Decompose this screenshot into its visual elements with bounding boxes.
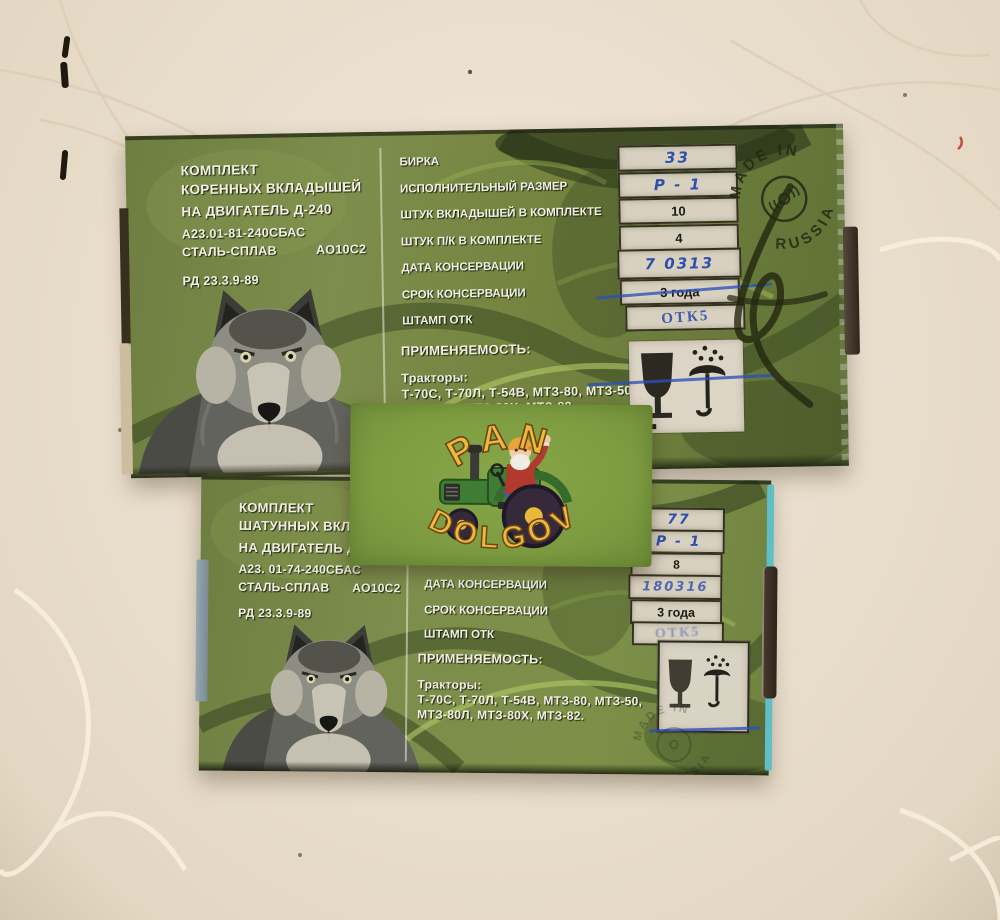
kit-title-line2: КОРЕННЫХ ВКЛАДЫШЕЙ <box>181 177 362 199</box>
application-title: ПРИМЕНЯЕМОСТЬ: <box>418 651 543 666</box>
application-title: ПРИМЕНЯЕМОСТЬ: <box>401 341 531 358</box>
spec-label: ШТУК П/К В КОМПЛЕКТЕ <box>401 234 542 248</box>
application-heading: Тракторы: <box>417 677 481 692</box>
business-card: PAN DOLGOV <box>349 403 652 567</box>
right-flap-tab <box>761 566 777 698</box>
spec-label: ДАТА КОНСЕРВАЦИИ <box>424 578 547 591</box>
material-label: СТАЛЬ-СПЛАВ <box>182 244 277 260</box>
spec-label: ДАТА КОНСЕРВАЦИИ <box>401 260 524 274</box>
value-tag: 77 <box>667 512 691 528</box>
engine-line: НА ДВИГАТЕЛЬ Д-240 <box>181 200 332 222</box>
material-grade: АО10С2 <box>352 581 400 595</box>
right-flap-tab <box>843 227 860 355</box>
material-grade: АО10С2 <box>316 242 367 257</box>
application-heading: Тракторы: <box>401 370 468 385</box>
photo-scene: КОМПЛЕКТ КОРЕННЫХ ВКЛАДЫШЕЙ НА ДВИГАТЕЛЬ… <box>0 0 1000 920</box>
marker-scribble <box>698 176 849 414</box>
value-box: 180316 <box>628 574 722 600</box>
application-models-line2: МТЗ-80Л, МТЗ-80Х, МТЗ-82. <box>417 707 584 722</box>
left-cardboard-edge <box>120 344 133 474</box>
spec-label: ШТАМП ОТК <box>402 314 472 327</box>
value-size: Р - 1 <box>654 175 702 194</box>
application-models-line1: Т-70С, Т-70Л, Т-54В, МТЗ-80, МТЗ-50, <box>417 692 642 708</box>
left-tape-strip <box>195 559 208 701</box>
engine-line: НА ДВИГАТЕЛЬ Д <box>239 540 357 556</box>
part-code: А23. 01-74-240СБАС <box>238 562 361 577</box>
spec-label: БИРКА <box>399 156 439 169</box>
red-mark <box>958 137 962 149</box>
value-tag: 33 <box>665 148 690 166</box>
spec-label: СРОК КОНСЕРВАЦИИ <box>424 604 548 617</box>
material-label: СТАЛЬ-СПЛАВ <box>238 580 329 595</box>
made-in-russia-stamp-faint: MADE IN RUSSIA <box>624 694 725 775</box>
value-shells-count: 10 <box>671 203 686 218</box>
value-conservation-date: 180316 <box>642 579 708 595</box>
value-shells-count: 8 <box>673 558 680 572</box>
value-conservation-term: 3 года <box>657 605 695 619</box>
kit-title-line1: КОМПЛЕКТ <box>239 500 314 516</box>
spec-label: ШТАМП ОТК <box>424 628 494 641</box>
value-pk-count: 4 <box>675 230 682 245</box>
kit-title-line1: КОМПЛЕКТ <box>181 160 259 180</box>
value-size: Р - 1 <box>656 533 702 549</box>
spec-label: СРОК КОНСЕРВАЦИИ <box>402 287 526 301</box>
wolf-image <box>211 618 437 773</box>
part-code: А23.01-81-240СБАС <box>182 225 306 241</box>
